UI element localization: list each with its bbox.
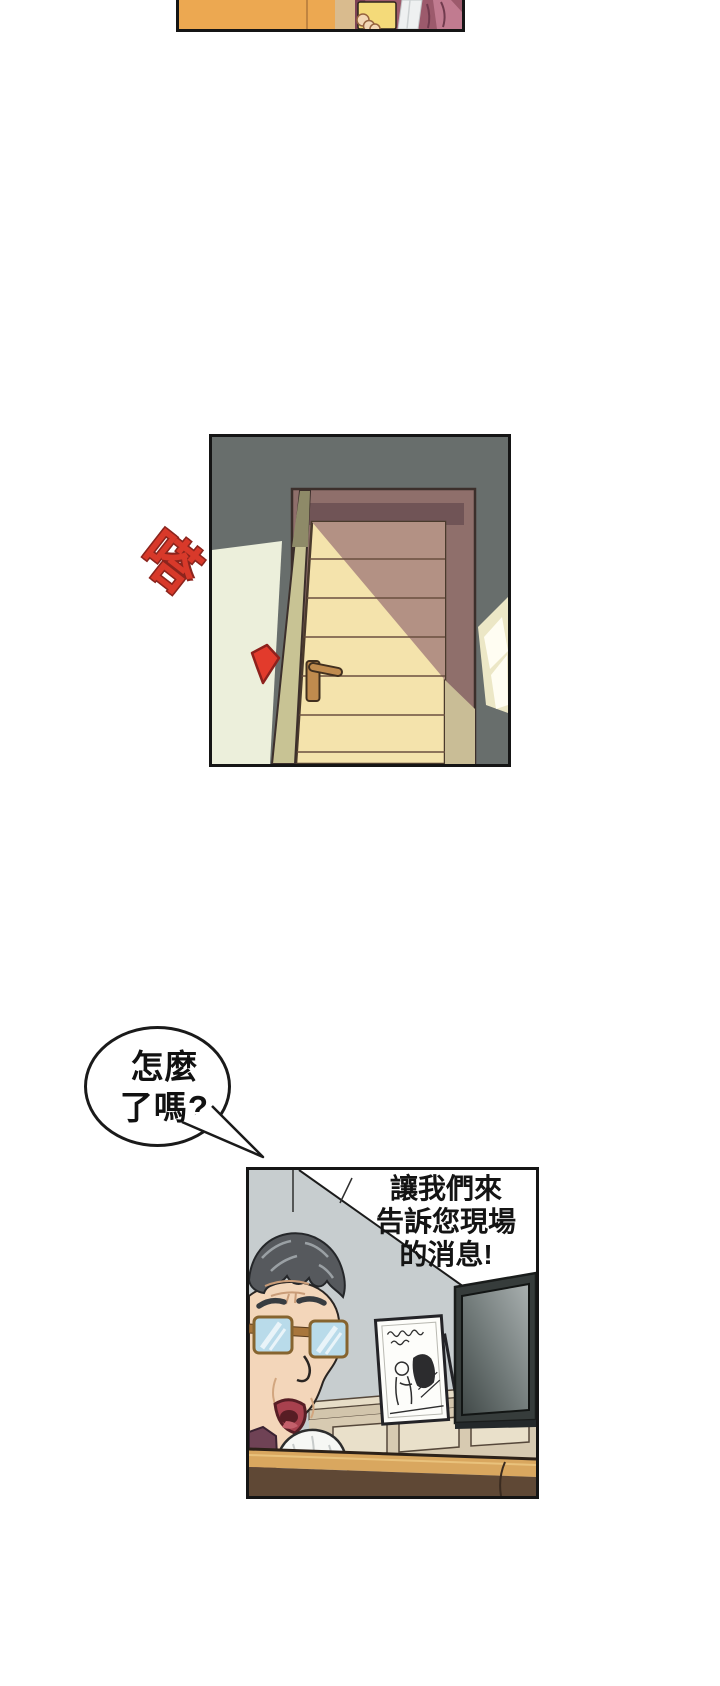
caption-line: 告訴您現場 [358,1205,534,1238]
broadcast-caption: 讓我們來 告訴您現場 的消息! [358,1172,534,1271]
top-strip-art [179,0,462,29]
panel-top-strip [176,0,465,32]
door-art [212,437,508,764]
shadow-strip [335,0,357,29]
caption-line: 的消息! [358,1238,534,1271]
tv [455,1273,536,1429]
panel-door [209,434,511,767]
caption-line: 讓我們來 [358,1172,534,1205]
hand-finger [370,24,380,29]
speech-line: 怎麼 [131,1046,199,1087]
speech-bubble-tail [140,1086,280,1166]
comic-page: { "comic": { "sfx_door": { "text": "嗒", … [0,0,720,1686]
foreground-table [249,1449,536,1496]
